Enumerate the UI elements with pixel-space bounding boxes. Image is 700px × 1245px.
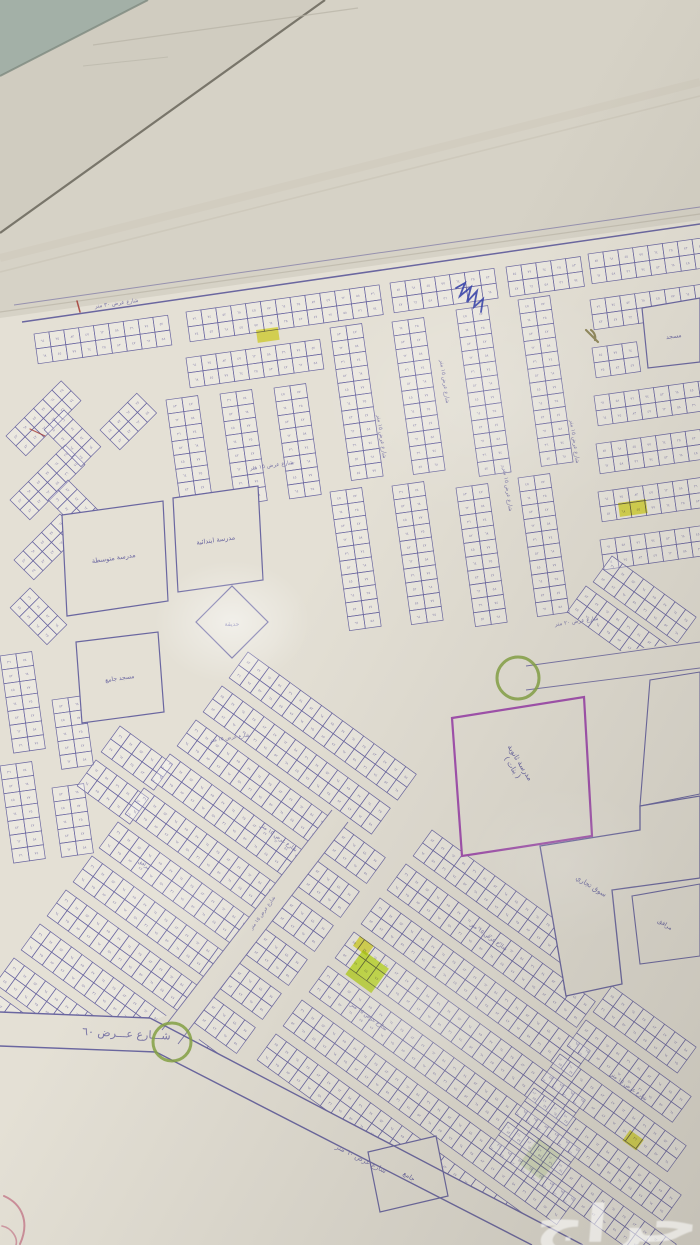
haraj-watermark: حراج: [533, 1195, 700, 1245]
photo-of-subdivision-map: ٦٤٢٥٨٣٤٧٦٢٥٨٣٦٧٤٥٢٦٨٤٥٧٧٦٤٢٥٨٣٤٧٦٢٥٨٣٦٧٤…: [0, 0, 700, 1245]
photo-vignette: [0, 0, 700, 1245]
plat-map: ٦٤٢٥٨٣٤٧٦٢٥٨٣٦٧٤٥٢٦٨٤٥٧٧٦٤٢٥٨٣٤٧٦٢٥٨٣٦٧٤…: [0, 0, 700, 1245]
